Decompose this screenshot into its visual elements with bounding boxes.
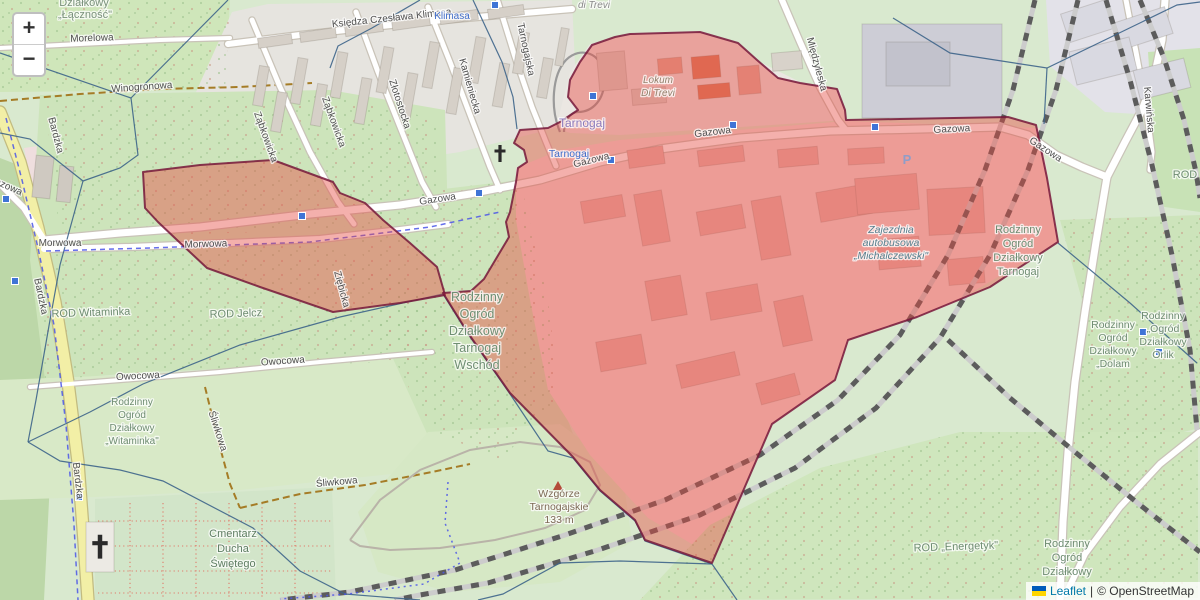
map-label: Rodzinny bbox=[995, 224, 1041, 236]
map-label: Rodzinny bbox=[111, 397, 153, 408]
map-label: Owocowa bbox=[116, 370, 161, 383]
map-tiles: PDziałkowy„Łączność"MorelowaWinogronowaM… bbox=[0, 0, 1200, 600]
map-label: Tarnogajskie bbox=[530, 501, 589, 513]
map-label: Tarnogaj bbox=[997, 266, 1039, 278]
zoom-control: + − bbox=[12, 12, 46, 77]
map-canvas[interactable]: PDziałkowy„Łączność"MorelowaWinogronowaM… bbox=[0, 0, 1200, 600]
map-label: Działkowy bbox=[59, 0, 109, 9]
map-label: Działkowy bbox=[1042, 566, 1092, 578]
zoom-out-button[interactable]: − bbox=[14, 45, 44, 75]
poi-blue-square-icon bbox=[299, 213, 306, 220]
attribution-bar: Leaflet | © OpenStreetMap bbox=[1026, 582, 1200, 600]
map-label: Tarnogaj bbox=[559, 116, 605, 130]
map-label: „Michalczewski" bbox=[853, 250, 930, 262]
poi-blue-square-icon bbox=[12, 278, 19, 285]
map-label: Działkowy bbox=[449, 324, 506, 338]
map-label: Klimasa bbox=[434, 11, 470, 22]
map-label: Ogród bbox=[1003, 238, 1034, 250]
poi-blue-square-icon bbox=[1140, 329, 1147, 336]
map-label: Ducha bbox=[217, 543, 250, 555]
map-label: di Trevi bbox=[578, 0, 611, 11]
osm-attribution: © OpenStreetMap bbox=[1097, 584, 1194, 598]
map-label: Morelowa bbox=[70, 32, 114, 45]
map-label: Działkowy bbox=[1139, 336, 1187, 348]
map-label: Tarnogaj bbox=[453, 341, 501, 355]
map-label: Świętego bbox=[210, 557, 255, 570]
map-label: Ogród bbox=[1098, 332, 1127, 344]
attribution-separator: | bbox=[1090, 584, 1093, 598]
building bbox=[886, 42, 950, 86]
map-label: Rodzinny bbox=[1141, 310, 1186, 322]
map-label: Di Trevi bbox=[641, 88, 675, 99]
map-label: Działkowy bbox=[993, 252, 1043, 264]
map-label: Morwowa bbox=[39, 238, 82, 249]
poi-blue-square-icon bbox=[476, 190, 483, 197]
map-label: Wzgórze bbox=[538, 488, 580, 500]
cemetery bbox=[95, 487, 336, 600]
map-label: Działkowy bbox=[1089, 345, 1137, 357]
map-label: Działkowy bbox=[109, 423, 154, 434]
map-label: ROD bbox=[1173, 169, 1198, 181]
map-label: „Dolam bbox=[1096, 358, 1130, 370]
map-label: „Witaminka" bbox=[105, 436, 159, 447]
map-label: Tarnogaj bbox=[549, 148, 589, 160]
building bbox=[771, 51, 802, 72]
poi-blue-square-icon bbox=[590, 93, 597, 100]
map-label: autobusowa bbox=[863, 237, 920, 249]
poi-blue-square-icon bbox=[3, 196, 10, 203]
map-label: Rodzinny bbox=[1044, 538, 1090, 550]
map-label: Morwowa bbox=[184, 238, 228, 251]
map-label: Rodzinny bbox=[451, 290, 504, 304]
parking-icon: P bbox=[903, 152, 912, 167]
building bbox=[32, 155, 54, 199]
map-label: Ogród bbox=[118, 410, 146, 421]
map-label: Lokum bbox=[643, 75, 673, 86]
map-label: Cmentarz bbox=[209, 528, 257, 540]
map-label: Ogród bbox=[1052, 552, 1083, 564]
map-label: Orlik bbox=[1152, 349, 1174, 361]
map-label: Gazowa bbox=[933, 123, 971, 136]
poi-blue-square-icon bbox=[872, 124, 879, 131]
ukraine-flag-icon bbox=[1032, 586, 1046, 596]
map-label: 133 m bbox=[544, 514, 573, 526]
map-label: Ogród bbox=[460, 307, 495, 321]
map-label: „Ogród bbox=[1147, 323, 1180, 335]
map-label: Zajezdnia bbox=[867, 224, 914, 236]
map-label: ROD Jelcz bbox=[209, 307, 262, 321]
zoom-in-button[interactable]: + bbox=[14, 14, 44, 45]
church-cross-icon bbox=[495, 145, 506, 162]
poi-blue-square-icon bbox=[492, 2, 499, 9]
map-label: Rodzinny bbox=[1091, 319, 1136, 331]
map-label: Wschód bbox=[454, 358, 499, 372]
leaflet-link[interactable]: Leaflet bbox=[1050, 584, 1086, 598]
map-label: „Łączność" bbox=[58, 9, 112, 21]
